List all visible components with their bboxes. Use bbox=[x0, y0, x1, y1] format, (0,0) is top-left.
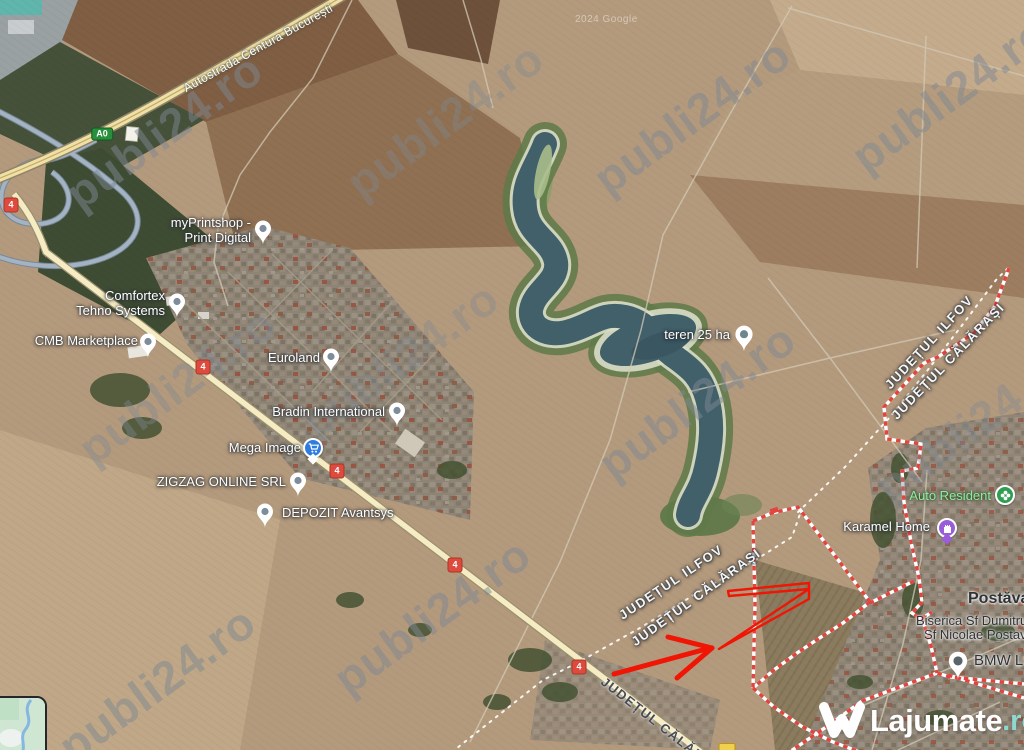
poi-pin-comfortex[interactable] bbox=[167, 292, 187, 319]
poi-label-biserica-line2[interactable]: Sf Nicolae Postav bbox=[924, 627, 1024, 642]
poi-label-mega-image[interactable]: Mega Image bbox=[229, 440, 301, 455]
poi-label-line: Comfortex bbox=[76, 288, 165, 303]
road-badge-clipped bbox=[719, 743, 736, 750]
poi-label-line: myPrintshop - bbox=[171, 215, 251, 230]
poi-icon-mega-image-cart[interactable] bbox=[303, 438, 323, 458]
locality-label-postavari[interactable]: Postăvari bbox=[968, 590, 1024, 608]
road-badge-4: 4 bbox=[196, 360, 211, 375]
poi-label-euroland[interactable]: Euroland bbox=[268, 350, 320, 365]
poi-pin-zigzag[interactable] bbox=[288, 471, 308, 498]
poi-pin-cmb[interactable] bbox=[138, 332, 158, 359]
logo-brand-text: Lajumate bbox=[870, 703, 1002, 739]
road-badge-4: 4 bbox=[572, 660, 587, 675]
castle-icon bbox=[943, 523, 952, 533]
poi-icon-karamel-castle[interactable] bbox=[937, 518, 957, 538]
poi-label-myprintshop[interactable]: myPrintshop - Print Digital bbox=[171, 215, 251, 245]
shopping-cart-icon bbox=[308, 443, 319, 454]
satellite-map[interactable] bbox=[0, 0, 1024, 750]
poi-label-line: Print Digital bbox=[171, 230, 251, 245]
lajumate-logo[interactable]: Lajumate.ro bbox=[818, 700, 1024, 742]
poi-icon-auto-resident-flower[interactable] bbox=[995, 485, 1015, 505]
poi-label-teren-25ha[interactable]: teren 25 ha bbox=[664, 327, 730, 342]
poi-pin-teren[interactable] bbox=[733, 324, 753, 351]
poi-label-bmw[interactable]: BMW LSD bbox=[974, 652, 1024, 669]
road-badge-4: 4 bbox=[448, 558, 463, 573]
roadside-building bbox=[125, 126, 138, 141]
poi-label-bradin[interactable]: Bradin International bbox=[272, 404, 385, 419]
lajumate-w-icon bbox=[818, 700, 866, 742]
poi-label-depozit[interactable]: DEPOZIT Avantsys bbox=[282, 505, 394, 520]
poi-pin-bradin[interactable] bbox=[387, 401, 407, 428]
poi-label-karamel-home[interactable]: Karamel Home bbox=[843, 519, 930, 534]
poi-label-auto-resident[interactable]: Auto Resident bbox=[909, 488, 991, 503]
poi-pin-depozit[interactable] bbox=[255, 502, 275, 529]
poi-label-zigzag[interactable]: ZIGZAG ONLINE SRL bbox=[157, 474, 286, 489]
road-badge-4: 4 bbox=[4, 198, 19, 213]
inset-minimap bbox=[0, 698, 45, 750]
poi-label-biserica[interactable]: Biserica Sf Dumitru bbox=[916, 613, 1024, 628]
poi-pin-myprintshop[interactable] bbox=[253, 219, 273, 246]
satellite-map-screenshot: publi24.ro publi24.ro publi24.ro publi24… bbox=[0, 0, 1024, 750]
logo-tld-text: .ro bbox=[1002, 705, 1024, 738]
road-badge-a0: A0 bbox=[91, 128, 113, 141]
map-inset[interactable] bbox=[0, 696, 47, 750]
poi-label-line: Tehno Systems bbox=[76, 303, 165, 318]
map-attribution: 2024 Google bbox=[575, 14, 638, 25]
road-badge-4: 4 bbox=[330, 464, 345, 479]
poi-label-comfortex[interactable]: Comfortex Tehno Systems bbox=[76, 288, 165, 318]
flower-icon bbox=[1000, 490, 1011, 501]
poi-pin-bmw[interactable] bbox=[946, 650, 966, 677]
poi-pin-euroland[interactable] bbox=[321, 347, 341, 374]
poi-label-cmb[interactable]: CMB Marketplace bbox=[35, 333, 138, 348]
